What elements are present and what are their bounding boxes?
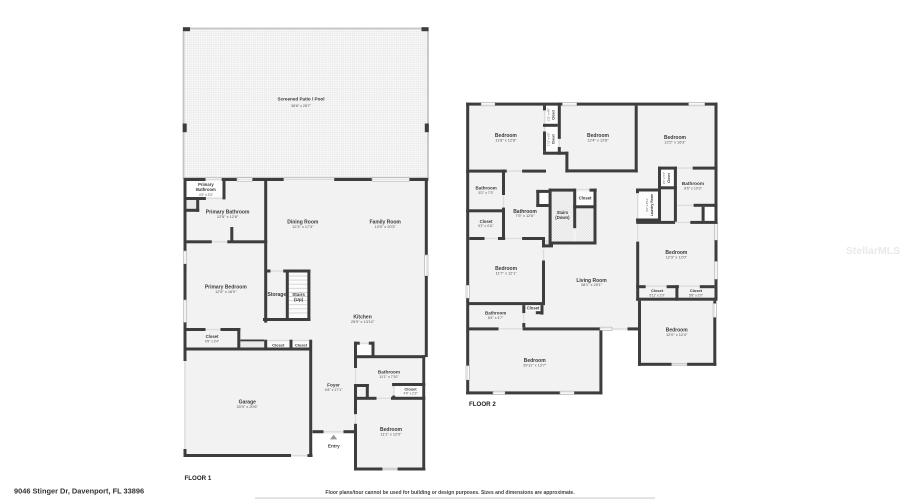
svg-text:(Down): (Down) [555,215,570,220]
svg-text:4'3" x 3'3": 4'3" x 3'3" [199,193,213,197]
svg-text:11'1" x 7'10": 11'1" x 7'10" [379,375,399,379]
svg-text:12'2" x 16'3": 12'2" x 16'3" [664,140,686,145]
svg-text:Floor plans/tour cannot be use: Floor plans/tour cannot be used for buil… [325,490,575,496]
svg-text:4'8" x 17'1": 4'8" x 17'1" [325,388,343,392]
svg-text:20'11" x 12'7": 20'11" x 12'7" [523,362,547,367]
svg-text:25'9" x 13'10": 25'9" x 13'10" [351,319,375,324]
svg-text:Bathroom: Bathroom [378,370,400,375]
svg-text:7'5" x 12'6": 7'5" x 12'6" [515,213,535,218]
svg-text:8'6" x 10'3": 8'6" x 10'3" [684,186,702,190]
svg-text:Closet: Closet [480,219,493,224]
svg-text:1'11" x 4'9": 1'11" x 4'9" [546,108,550,122]
svg-text:5'2" x 4'11": 5'2" x 4'11" [478,224,493,228]
svg-text:13'5" x 20'3": 13'5" x 20'3" [375,224,397,229]
svg-text:11'8" x 12'8": 11'8" x 12'8" [495,137,517,142]
svg-text:38'6" x 28'7": 38'6" x 28'7" [291,104,311,108]
svg-text:8'4" x 4'7": 8'4" x 4'7" [488,316,504,320]
svg-text:Closet: Closet [551,109,555,120]
svg-text:4'9" x 2'3": 4'9" x 2'3" [404,392,418,396]
svg-text:Bathroom: Bathroom [475,186,496,191]
svg-text:20'0" x 20'6": 20'0" x 20'6" [237,404,259,409]
svg-text:Closet: Closet [551,133,555,144]
svg-text:12'5" x 12'6": 12'5" x 12'6" [217,214,239,219]
svg-text:StellarMLS: StellarMLS [846,245,900,257]
svg-text:Bathroom: Bathroom [682,181,704,186]
svg-text:5'11" x 2'0": 5'11" x 2'0" [649,293,664,297]
svg-text:Entry: Entry [328,444,340,449]
svg-text:Foyer: Foyer [327,383,340,388]
svg-text:Bathroom: Bathroom [196,187,216,192]
svg-text:11'7" x 12'1": 11'7" x 12'1" [496,270,518,275]
svg-text:18'1" x 25'1": 18'1" x 25'1" [581,282,603,287]
svg-text:12'3" x 17'3": 12'3" x 17'3" [292,224,314,229]
svg-text:FLOOR 2: FLOOR 2 [469,401,496,408]
svg-text:5'8" x 2'0": 5'8" x 2'0" [689,293,703,297]
svg-text:1'11" x 6'5": 1'11" x 6'5" [546,132,550,146]
svg-text:Closet: Closet [667,172,671,183]
svg-text:12'4" x 12'8": 12'4" x 12'8" [587,137,609,142]
svg-text:Closet: Closet [272,342,285,347]
svg-text:Closet: Closet [527,306,540,311]
svg-text:2'1" x 5'1": 2'1" x 5'1" [662,172,666,184]
svg-text:3'4" x 8'11": 3'4" x 8'11" [645,198,649,212]
svg-text:Storage: Storage [267,292,286,298]
svg-text:12'3" x 12'0": 12'3" x 12'0" [666,254,688,259]
svg-text:Closet: Closet [579,196,592,201]
svg-text:FLOOR 1: FLOOR 1 [185,475,212,482]
svg-text:5'2" x 7'3": 5'2" x 7'3" [478,191,494,195]
svg-text:Laundry Room: Laundry Room [650,194,654,217]
svg-text:Bathroom: Bathroom [485,311,506,316]
svg-text:12'0" x 12'4": 12'0" x 12'4" [666,332,688,337]
svg-text:Screened Patio / Pool: Screened Patio / Pool [278,97,325,102]
svg-text:Closet: Closet [295,342,308,347]
svg-text:11'1" x 12'0": 11'1" x 12'0" [380,431,402,436]
svg-text:9'5" x 3'4": 9'5" x 3'4" [205,339,219,343]
svg-text:12'5" x 16'9": 12'5" x 16'9" [215,289,237,294]
svg-text:(Up): (Up) [294,297,304,302]
svg-text:Closet: Closet [206,334,219,339]
svg-text:9046 Stinger Dr, Davenport, FL: 9046 Stinger Dr, Davenport, FL 33896 [14,487,144,496]
